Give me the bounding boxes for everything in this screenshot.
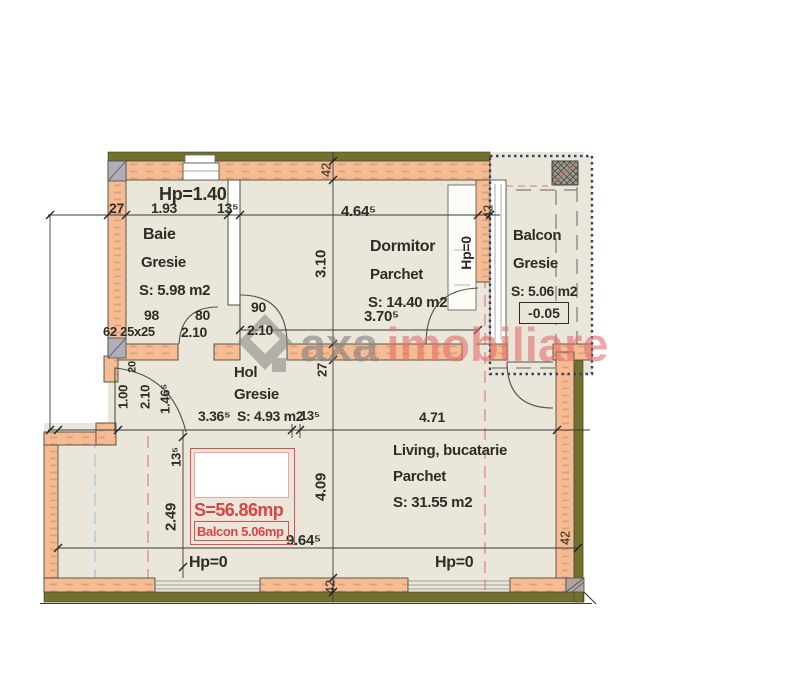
dim-entry-wall: 20 [128, 361, 139, 373]
dim-baie-wall: 27 [109, 201, 124, 215]
room-living-name: Living, bucatarie [393, 443, 507, 458]
dim-wall42-niche: 42 [482, 205, 495, 219]
room-living-area: S: 31.55 m2 [393, 495, 472, 510]
watermark-text-red: imobiliare [386, 317, 608, 372]
hp-bottom-right-label: Hp=0 [435, 555, 473, 571]
dim-dormitor-depth: 3.10 [314, 250, 329, 278]
total-area-label: S=56.86mp [194, 500, 283, 521]
hp-niche-label: Hp=0 [459, 236, 473, 269]
dim-baie-width: 1.93 [151, 201, 177, 215]
room-dormitor-name: Dormitor [370, 239, 435, 255]
room-hol-name: Hol [234, 365, 257, 380]
dim-baie-partition: 13⁵ [217, 201, 238, 215]
dim-shaft: 62 25x25 [103, 325, 155, 338]
room-hol-finish: Gresie [234, 387, 279, 402]
hp-bottom-left-label: Hp=0 [189, 555, 227, 571]
dim-wall42-bottom: 42 [324, 580, 337, 594]
dim-door-98: 98 [144, 308, 159, 322]
balcon-level-box: -0.05 [519, 302, 569, 324]
dim-entry-segment: 1.46⁵ [159, 384, 172, 414]
room-baie-finish: Gresie [141, 255, 186, 270]
room-baie-area: S: 5.98 m2 [139, 283, 210, 298]
dim-wall42-right: 42 [559, 531, 572, 545]
dim-hol-width: 3.36⁵ [198, 409, 230, 423]
room-balcon-area: S: 5.06 m2 [511, 284, 577, 298]
dim-entry-width: 1.00 [117, 385, 130, 409]
room-baie-name: Baie [143, 227, 176, 243]
dim-dormitor-width: 4.64⁵ [341, 204, 376, 219]
balcony-area-box: Balcon 5.06mp [194, 521, 289, 541]
dim-balcony-segment: 13⁵ [170, 447, 183, 467]
dim-living-width: 4.71 [419, 410, 445, 424]
summary-white-card [194, 452, 289, 498]
dim-hol-partition: 13⁵ [300, 409, 320, 422]
dim-living-depth: 4.09 [314, 473, 329, 501]
room-balcon-name: Balcon [513, 228, 561, 243]
room-dormitor-finish: Parchet [370, 267, 423, 282]
dim-wall42-top: 42 [320, 163, 333, 177]
dim-door-height-b: 2.10 [247, 323, 273, 337]
dim-door-height-a: 2.10 [181, 325, 207, 339]
balcon-level-value: -0.05 [528, 305, 560, 321]
area-summary-box: S=56.86mp Balcon 5.06mp [190, 448, 295, 545]
dim-dormitor-inner: 3.70⁵ [364, 309, 399, 324]
dim-door-90: 90 [251, 300, 266, 314]
floorplan-page: axa imobiliare Hp=1.40 27 1.93 13⁵ 4.64⁵… [0, 0, 800, 688]
room-living-finish: Parchet [393, 469, 446, 484]
dim-balcony-depth: 2.49 [164, 503, 179, 531]
dim-wall-mid: 27 [316, 363, 329, 377]
room-balcon-finish: Gresie [513, 256, 558, 271]
dim-door-80: 80 [195, 308, 210, 322]
balcony-area-label: Balcon 5.06mp [195, 524, 284, 539]
dim-entry-height: 2.10 [139, 385, 152, 409]
room-hol-area: S: 4.93 m2 [237, 409, 303, 423]
